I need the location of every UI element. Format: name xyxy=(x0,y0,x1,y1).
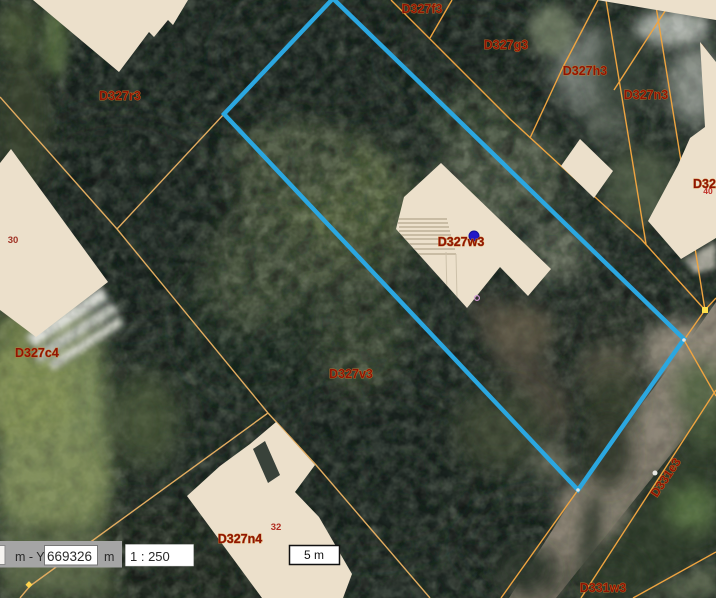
svg-text:30: 30 xyxy=(8,235,19,246)
svg-text:1 : 250: 1 : 250 xyxy=(130,549,170,564)
svg-text:D327n3: D327n3 xyxy=(624,88,669,102)
svg-text:40: 40 xyxy=(703,186,713,196)
svg-text:32: 32 xyxy=(271,522,282,533)
svg-text:D327n4: D327n4 xyxy=(218,532,263,546)
svg-text:D327g3: D327g3 xyxy=(484,38,529,52)
svg-text:D331w3: D331w3 xyxy=(580,581,627,595)
svg-text:D327w3: D327w3 xyxy=(438,235,485,249)
svg-text:m - Y: m - Y xyxy=(15,550,45,564)
svg-text:m: m xyxy=(104,550,114,564)
svg-text:D327r3: D327r3 xyxy=(99,89,141,103)
svg-text:5 m: 5 m xyxy=(304,548,324,562)
svg-text:D327v3: D327v3 xyxy=(329,367,373,381)
svg-text:669326: 669326 xyxy=(47,549,92,564)
svg-text:D327f3: D327f3 xyxy=(402,2,443,16)
svg-text:D327h3: D327h3 xyxy=(563,64,608,78)
svg-text:D327c4: D327c4 xyxy=(15,346,59,360)
